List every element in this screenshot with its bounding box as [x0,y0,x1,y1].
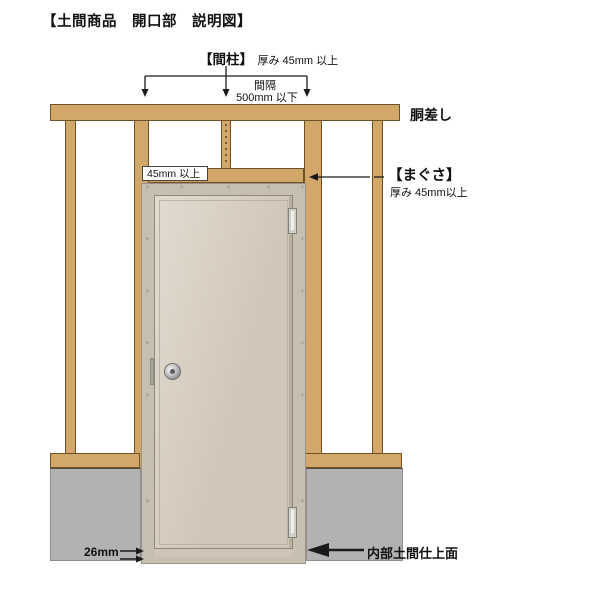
frame-screw-mark-icon: + [299,288,306,295]
door-strike-plate [150,358,154,385]
door-hinge-bottom-icon [288,507,297,538]
diagram-canvas: +++++++++++++++ 【土間商品 開口部 説明図】 【間柱】 厚み 4… [0,0,600,600]
frame-screw-mark-icon: + [299,340,306,347]
stud-outer-right [372,120,383,455]
frame-screw-mark-icon: + [299,184,306,191]
header-min-width-box: 45mm 以上 [142,166,208,181]
spacing-label-line2: 500mm 以下 [236,89,298,105]
diagram-title: 【土間商品 開口部 説明図】 [42,10,252,31]
girth-beam-label: 胴差し [410,105,452,125]
frame-screw-mark-icon: + [144,236,151,243]
stud-outer-left [65,120,76,455]
sill-right [304,453,402,468]
sill-left [50,453,140,468]
frame-screw-mark-icon: + [144,392,151,399]
frame-screw-mark-icon: + [299,392,306,399]
magusa-label: 【まぐさ】 [388,164,461,185]
door-edge-shadow [289,196,292,548]
girth-beam [50,104,400,121]
mabashira-label: 【間柱】 厚み 45mm 以上 [199,48,338,69]
door-hinge-top-icon [288,208,297,234]
mabashira-label-main: 【間柱】 [199,52,253,67]
floor-surface-label: 内部土間仕上面 [367,543,458,562]
mabashira-label-detail: 厚み 45mm 以上 [257,55,338,67]
door-bottom-edge [154,548,293,557]
door-knob-icon [164,363,181,380]
frame-screw-mark-icon: + [299,498,306,505]
frame-screw-mark-icon: + [299,236,306,243]
frame-screw-mark-icon: + [144,498,151,505]
frame-screw-mark-icon: + [265,184,272,191]
frame-screw-mark-icon: + [144,288,151,295]
frame-screw-mark-icon: + [225,184,232,191]
magusa-label-detail: 厚み 45mm以上 [390,184,468,200]
stud-centerline-dots [225,124,227,166]
frame-screw-mark-icon: + [144,340,151,347]
frame-screw-mark-icon: + [144,184,151,191]
bottom-gap-label: 26mm [84,545,118,559]
frame-screw-mark-icon: + [178,184,185,191]
